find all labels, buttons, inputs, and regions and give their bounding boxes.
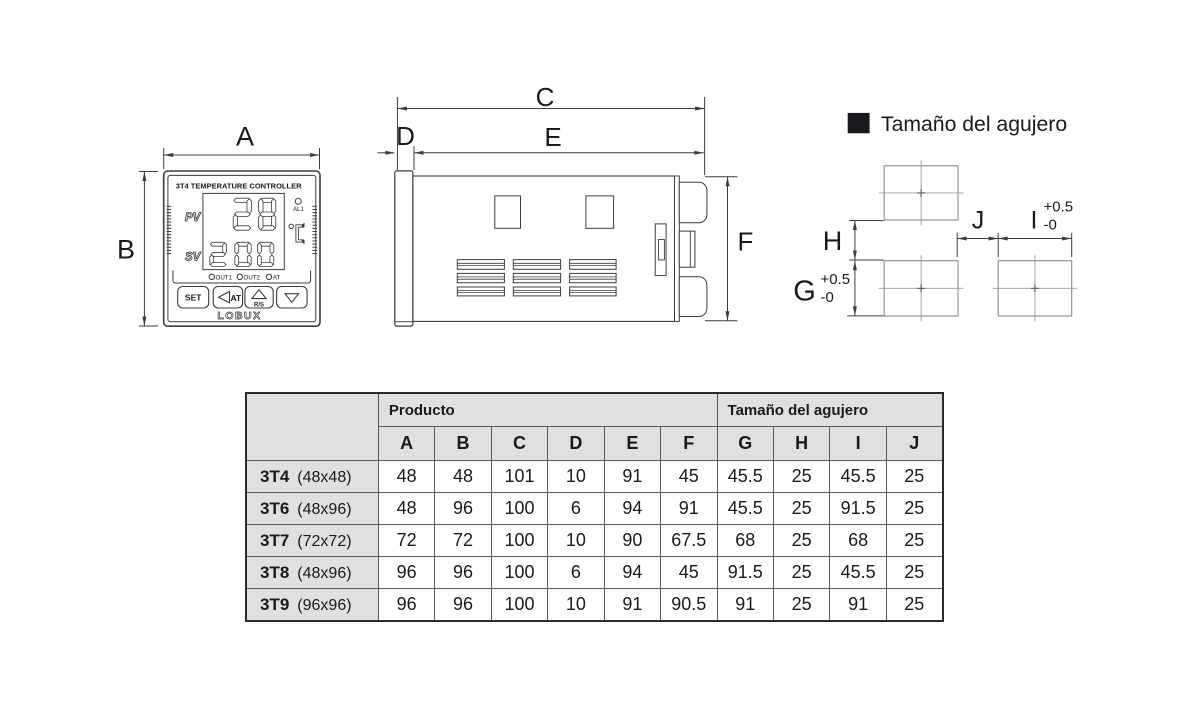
svg-text:3T4 TEMPERATURE CONTROLLER: 3T4 TEMPERATURE CONTROLLER (176, 182, 302, 191)
svg-text:A: A (236, 122, 254, 152)
svg-text:R/S: R/S (254, 302, 264, 308)
svg-text:PV: PV (185, 212, 202, 224)
svg-text:C: C (536, 82, 555, 112)
svg-text:J: J (972, 207, 985, 235)
svg-text:OUT2: OUT2 (244, 275, 261, 282)
svg-text:OUT1: OUT1 (216, 275, 233, 282)
svg-text:AT: AT (273, 275, 281, 282)
svg-text:-0: -0 (1044, 217, 1057, 234)
svg-text:AL1: AL1 (293, 207, 304, 213)
svg-text:SET: SET (185, 293, 202, 303)
svg-text:F: F (738, 227, 754, 257)
svg-text:H: H (823, 226, 843, 256)
svg-text:B: B (117, 235, 135, 265)
svg-text:D: D (396, 121, 415, 151)
svg-text:LOBUX: LOBUX (217, 310, 261, 322)
svg-text:Tamaño del agujero: Tamaño del agujero (881, 113, 1067, 136)
svg-text:+0.5: +0.5 (821, 271, 851, 288)
svg-text:+0.5: +0.5 (1044, 199, 1074, 216)
svg-text:-0: -0 (821, 289, 834, 306)
svg-text:E: E (544, 122, 561, 152)
svg-text:SV: SV (185, 252, 202, 264)
svg-text:I: I (1031, 207, 1038, 235)
svg-text:G: G (793, 276, 816, 308)
svg-text:AT: AT (231, 293, 243, 303)
